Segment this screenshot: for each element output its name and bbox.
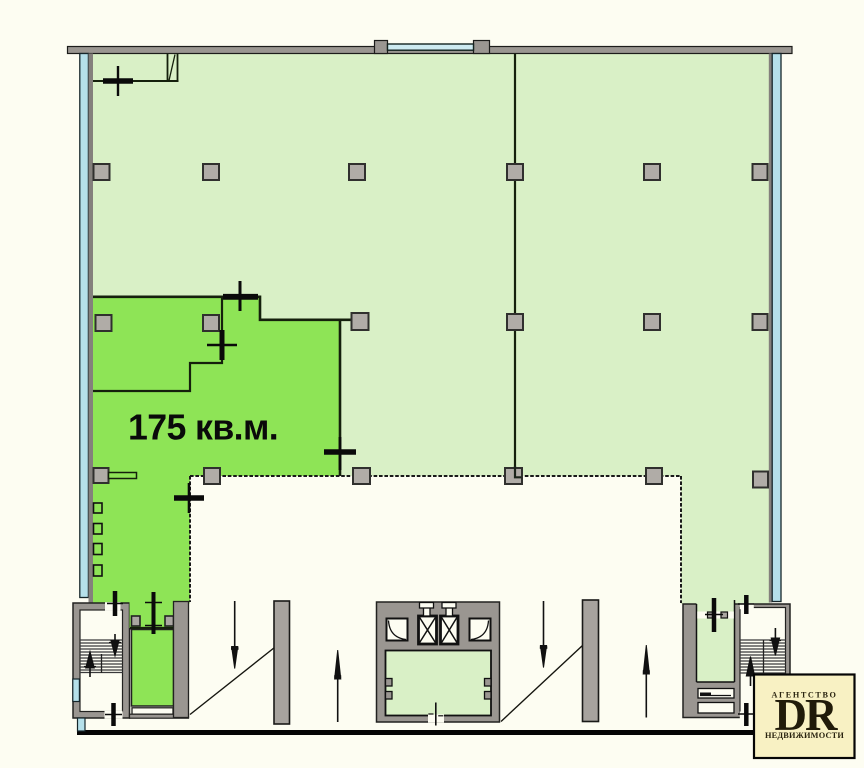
svg-text:175 кв.м.: 175 кв.м. <box>128 408 278 448</box>
svg-text:НЕДВИЖИМОСТИ: НЕДВИЖИМОСТИ <box>765 731 844 740</box>
